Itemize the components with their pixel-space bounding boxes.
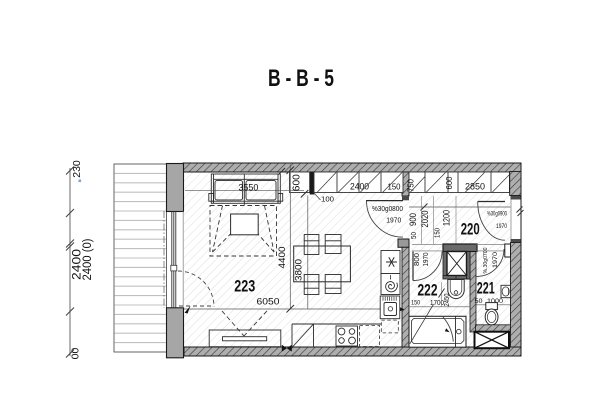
svg-text:800: 800 — [412, 253, 421, 266]
svg-text:2850: 2850 — [465, 182, 485, 192]
svg-text:900: 900 — [408, 213, 418, 226]
svg-text:1970: 1970 — [423, 252, 430, 266]
svg-text:221: 221 — [477, 279, 495, 297]
svg-text:150: 150 — [435, 228, 442, 238]
svg-text:223: 223 — [234, 278, 255, 296]
svg-text:230: 230 — [71, 160, 83, 178]
svg-text:222: 222 — [418, 282, 438, 300]
svg-text:3550: 3550 — [238, 182, 258, 192]
svg-text:600: 600 — [444, 176, 454, 189]
svg-text:4400: 4400 — [277, 247, 287, 269]
svg-text:00: 00 — [70, 348, 82, 360]
svg-text:2020: 2020 — [420, 211, 430, 228]
svg-text:50: 50 — [475, 298, 483, 305]
svg-text:%30g0800: %30g0800 — [372, 206, 403, 213]
svg-text:1970: 1970 — [492, 252, 499, 268]
svg-text:%.30g0700: %.30g0700 — [483, 248, 489, 274]
svg-text:3800: 3800 — [293, 259, 303, 281]
svg-text:B - B - 5: B - B - 5 — [268, 65, 334, 92]
svg-text:50: 50 — [411, 232, 418, 239]
svg-text:2400: 2400 — [350, 182, 369, 193]
svg-text:150: 150 — [411, 300, 420, 307]
svg-text:100: 100 — [321, 195, 334, 204]
svg-text:150: 150 — [388, 183, 402, 192]
svg-text:600: 600 — [292, 174, 303, 191]
svg-text:1200: 1200 — [442, 210, 452, 226]
svg-text:2400 (0): 2400 (0) — [82, 238, 94, 280]
svg-text:6050: 6050 — [257, 297, 280, 308]
svg-text:750: 750 — [405, 179, 415, 192]
svg-text:1970: 1970 — [386, 216, 401, 225]
svg-text:220: 220 — [461, 220, 480, 238]
svg-text:1970: 1970 — [496, 223, 507, 230]
svg-text:%30g0900: %30g0900 — [487, 212, 507, 218]
